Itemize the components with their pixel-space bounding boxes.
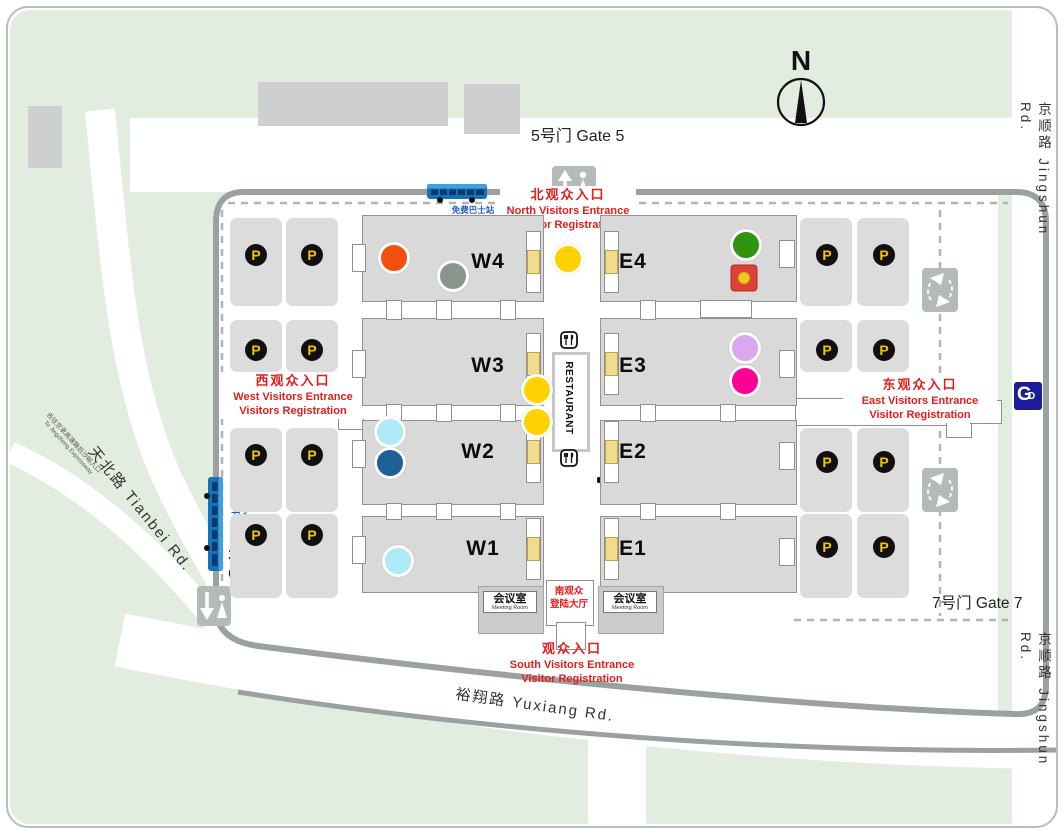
shuttle-bus-icon-west bbox=[203, 476, 225, 572]
hall-connector bbox=[640, 404, 656, 422]
parking-icon: P bbox=[245, 339, 267, 361]
restaurant-icon-top bbox=[560, 331, 578, 349]
hall-connector bbox=[779, 350, 795, 378]
corridor-door-yellow bbox=[605, 537, 618, 561]
exhibition-center-site-map: 南观众 登陆大厅 RESTAURANT N G D bbox=[0, 0, 1064, 834]
hall-connector bbox=[352, 350, 366, 378]
hall-connector bbox=[436, 300, 452, 320]
corridor-door-yellow bbox=[527, 352, 540, 376]
hall-connector bbox=[352, 536, 366, 564]
east-gate-icon-upper bbox=[922, 268, 958, 312]
compass-n-label: N bbox=[791, 45, 811, 76]
restaurant-label: RESTAURANT bbox=[554, 352, 584, 444]
building-top-left bbox=[28, 106, 62, 168]
hall-connector bbox=[500, 503, 516, 520]
marker-cyan-dot-w1 bbox=[382, 545, 414, 577]
south-entrance-label: 观众入口 South Visitors Entrance Visitor Reg… bbox=[494, 640, 650, 687]
corridor-door-yellow bbox=[527, 440, 540, 464]
parking-icon: P bbox=[301, 524, 323, 546]
marker-yellow-dot-mid1 bbox=[521, 374, 553, 406]
hall-label-W2: W2 bbox=[461, 440, 495, 464]
hall-connector bbox=[700, 300, 752, 318]
hall-connector bbox=[436, 404, 452, 422]
building-top-small bbox=[464, 84, 520, 134]
jingshun-road-label-bottom: 京顺路 Jingshun Rd. bbox=[1018, 632, 1053, 802]
hall-label-E2: E2 bbox=[619, 440, 647, 464]
corridor-door-yellow bbox=[527, 537, 540, 561]
parking-icon: P bbox=[301, 444, 323, 466]
parking-icon: P bbox=[245, 524, 267, 546]
parking-icon: P bbox=[301, 244, 323, 266]
corridor-door-yellow bbox=[605, 440, 618, 464]
parking-icon: P bbox=[245, 444, 267, 466]
hall-label-W3: W3 bbox=[471, 354, 505, 378]
coin-icon bbox=[738, 272, 751, 285]
compass-north-icon: N bbox=[770, 42, 832, 134]
parking-icon: P bbox=[873, 536, 895, 558]
corridor-door-yellow bbox=[605, 352, 618, 376]
hall-connector bbox=[779, 240, 795, 268]
hall-connector bbox=[500, 300, 516, 320]
hall-connector bbox=[500, 404, 516, 422]
hall-label-E4: E4 bbox=[619, 250, 647, 274]
hall-label-W1: W1 bbox=[466, 537, 500, 561]
gate7-label: 7号门 Gate 7 bbox=[932, 591, 1022, 613]
marker-orange-dot bbox=[378, 242, 410, 274]
meeting-room-west: 会议室Meeting Room bbox=[478, 586, 544, 634]
gate3-pedestrian-icon bbox=[197, 586, 231, 626]
hall-connector bbox=[386, 300, 402, 320]
meeting-room-east: 会议室Meeting Room bbox=[598, 586, 664, 634]
hall-connector bbox=[436, 503, 452, 520]
restaurant-icon-bottom bbox=[560, 449, 578, 467]
parking-icon: P bbox=[816, 244, 838, 266]
east-entrance-label: 东观众入口 East Visitors Entrance Visitor Reg… bbox=[843, 376, 997, 423]
parking-icon: P bbox=[816, 536, 838, 558]
west-entrance-label: 西观众入口 West Visitors Entrance Visitors Re… bbox=[220, 372, 366, 419]
parking-icon: P bbox=[816, 339, 838, 361]
marker-green-dot bbox=[730, 229, 762, 261]
corridor-door-yellow bbox=[527, 250, 540, 274]
parking-strip bbox=[286, 428, 338, 512]
marker-blue-dot-w2 bbox=[374, 447, 406, 479]
meeting-room-label: 会议室Meeting Room bbox=[483, 591, 537, 613]
parking-icon: P bbox=[873, 451, 895, 473]
hall-label-W4: W4 bbox=[471, 250, 505, 274]
marker-yellow-dot-north bbox=[552, 243, 584, 275]
marker-cyan-dot-w2 bbox=[374, 416, 406, 448]
east-gate-icon-lower bbox=[922, 468, 958, 512]
hall-connector bbox=[352, 244, 366, 272]
hall-connector bbox=[720, 404, 736, 422]
marker-red-envelope bbox=[731, 265, 758, 292]
parking-icon: P bbox=[873, 339, 895, 361]
marker-yellow-dot-mid2 bbox=[521, 406, 553, 438]
corridor-door-yellow bbox=[605, 250, 618, 274]
shuttle-bus-icon-north bbox=[426, 182, 488, 204]
subway-station-icon: G D bbox=[1014, 382, 1042, 410]
gate5-label: 5号门 Gate 5 bbox=[531, 122, 624, 146]
hall-connector bbox=[352, 440, 366, 468]
marker-magenta-dot bbox=[729, 365, 761, 397]
marker-gray-dot bbox=[437, 260, 469, 292]
parking-icon: P bbox=[301, 339, 323, 361]
hall-connector bbox=[779, 538, 795, 566]
meeting-room-label: 会议室Meeting Room bbox=[603, 591, 657, 613]
hall-connector bbox=[640, 503, 656, 520]
hall-connector bbox=[779, 442, 795, 470]
parking-strip bbox=[230, 428, 282, 512]
parking-icon: P bbox=[245, 244, 267, 266]
parking-icon: P bbox=[816, 451, 838, 473]
hall-W3 bbox=[362, 318, 544, 406]
hall-label-E1: E1 bbox=[619, 537, 647, 561]
hall-connector bbox=[386, 503, 402, 520]
building-top-long bbox=[258, 82, 448, 126]
south-hall-label: 南观众 登陆大厅 bbox=[547, 586, 591, 612]
hall-label-E3: E3 bbox=[619, 354, 647, 378]
jingshun-road-label-top: 京顺路 Jingshun Rd. bbox=[1018, 102, 1053, 272]
parking-icon: P bbox=[873, 244, 895, 266]
hall-connector bbox=[640, 300, 656, 320]
marker-lavender-dot bbox=[729, 332, 761, 364]
hall-connector bbox=[720, 503, 736, 520]
